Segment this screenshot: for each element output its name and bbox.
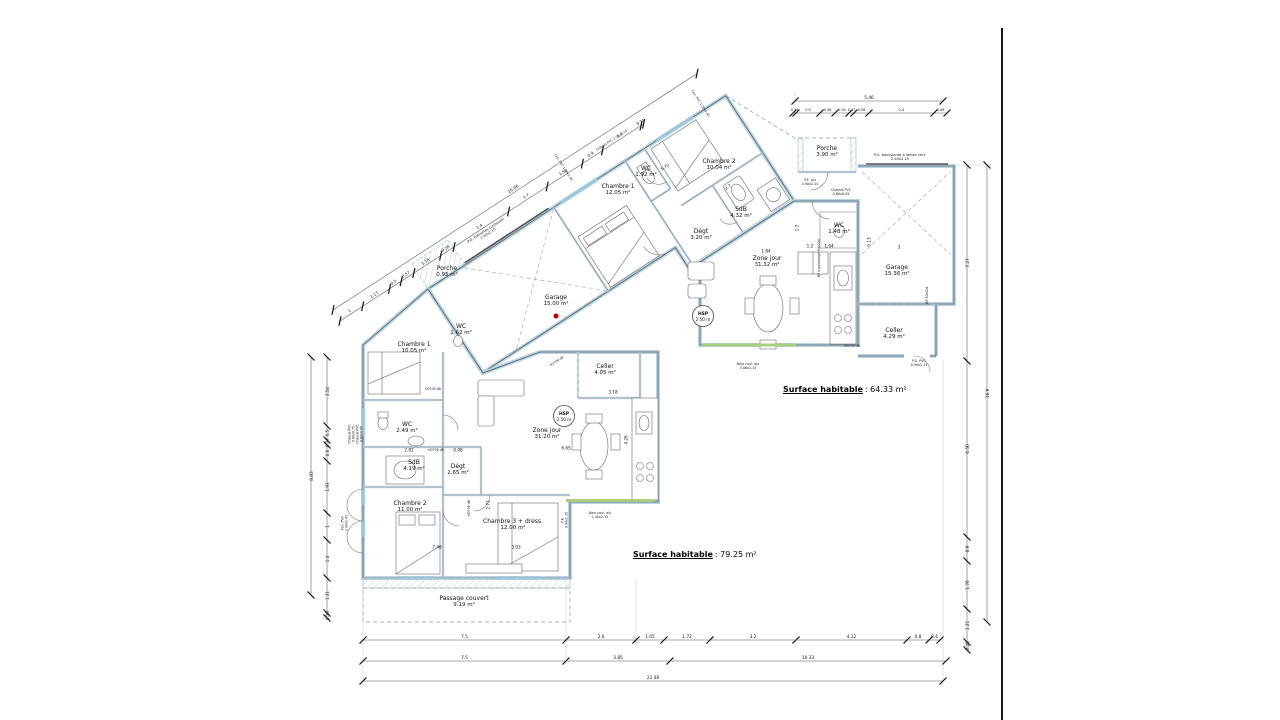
annotation-label: P.E.0.90x2.15	[561, 512, 568, 528]
room-area: 4.32 m²	[730, 213, 752, 220]
annotation-label: P.E. alu0.90x2.15	[802, 179, 819, 187]
surface-label: Surface habitable	[783, 385, 863, 394]
annotation-label: P.G. basculante à lames vert.2.40x2.15	[874, 153, 926, 161]
room-name: Dégt	[690, 228, 712, 235]
annotation-line: 0.90x2.15	[565, 512, 569, 528]
bay-window-lower	[566, 499, 654, 502]
floor-plan-canvas: 7.52.61.051.723.24.120.80.47.53.8510.332…	[0, 0, 1280, 720]
surface-value: : 79.25 m²	[715, 550, 757, 559]
annotation-line: 2.40x2.15	[874, 157, 926, 161]
dim-label: 3.18	[608, 390, 617, 395]
annotation-label: BP à galandage 80x204	[818, 239, 822, 277]
sofa	[478, 380, 524, 396]
svg-text:1.93: 1.93	[325, 482, 330, 491]
room-label-wc: WC1.48 m²	[828, 222, 850, 236]
room-area: 15.36 m²	[884, 271, 909, 278]
lower-wing	[347, 289, 658, 580]
annotation-line: H0709 dB	[428, 449, 444, 453]
annotation-line: BP à galandage 80x204	[818, 239, 822, 277]
annotation-label: Baie coul. alu2.40x2.15	[589, 512, 611, 520]
room-label-chambre-1: Chambre 110.05 m²	[397, 341, 430, 355]
svg-text:0.4: 0.4	[931, 634, 938, 640]
svg-text:1.4: 1.4	[325, 555, 330, 562]
room-label-passage-couvert: Passage couvert9.19 m²	[439, 595, 488, 609]
annotation-line: 0.60x0.95	[831, 193, 851, 197]
room-area: 4.05 m²	[594, 370, 616, 377]
room-name: Dégt	[447, 463, 469, 470]
dim-label: 2.82	[404, 448, 413, 453]
svg-text:0.9: 0.9	[586, 150, 594, 158]
room-label-porche: Porche3.90 m²	[816, 145, 838, 159]
surface-label: Surface habitable	[633, 550, 713, 559]
svg-text:1.05: 1.05	[645, 634, 655, 640]
porche-wall	[798, 138, 803, 172]
dim-label: 3	[898, 245, 901, 250]
dim-label: 6.65	[561, 446, 570, 451]
svg-text:2.54: 2.54	[325, 387, 330, 396]
room-label-d-gt: Dégt2.65 m²	[447, 463, 469, 477]
annotation-line: 2.40x2.15	[589, 516, 611, 520]
surface-habitable-lower: Surface habitable: 79.25 m²	[633, 550, 757, 559]
dim-label: 1.2	[807, 244, 814, 249]
room-name: Celler	[594, 363, 616, 370]
room-name: WC	[396, 421, 418, 428]
svg-text:1.7: 1.7	[522, 192, 530, 200]
bed-chambre2-lower	[396, 512, 440, 574]
room-label-porche: Porche0.95 m²	[436, 265, 458, 279]
room-label-garage: Garage15.36 m²	[884, 264, 909, 278]
dim-label: 1.94	[824, 244, 833, 249]
annotation-label: BP 80x204	[926, 286, 930, 303]
room-name: Zone jour	[753, 255, 782, 262]
svg-text:3.2: 3.2	[750, 634, 757, 640]
svg-text:1.76: 1.76	[965, 580, 971, 590]
sheet-edge-line	[1001, 28, 1003, 720]
room-area: 12.00 m²	[483, 525, 543, 532]
svg-text:0.56: 0.56	[858, 108, 866, 112]
svg-text:0.9: 0.9	[805, 108, 810, 112]
annotation-line: 0.60x0.95	[360, 424, 364, 443]
room-area: 11.00 m²	[393, 507, 426, 514]
room-area: 2.65 m²	[447, 470, 469, 477]
svg-text:0.49: 0.49	[937, 108, 945, 112]
svg-text:16.9: 16.9	[985, 388, 991, 398]
dim-chain-top-right-inner: 0.110.90.560.500.170.562.40.49	[790, 108, 951, 117]
room-area: 31.32 m²	[753, 262, 782, 269]
surface-habitable-upper: Surface habitable: 64.33 m²	[783, 385, 907, 394]
svg-text:1.21: 1.21	[965, 620, 971, 630]
svg-text:10.33: 10.33	[802, 655, 815, 661]
room-area: 12.05 m²	[601, 190, 634, 197]
annotation-line: 3.06x2.15	[737, 367, 759, 371]
dim-chain-right-outer: 16.9	[984, 162, 992, 626]
room-area: 2.49 m²	[396, 428, 418, 435]
surface-value: : 64.33 m²	[865, 385, 907, 394]
svg-text:16.06: 16.06	[507, 183, 521, 195]
room-label-sdb: SdB4.32 m²	[730, 206, 752, 220]
kitchen-upper	[798, 252, 856, 344]
room-area: 4.19 m²	[403, 466, 425, 473]
bed-chambre1-upper	[578, 205, 659, 287]
room-name: Garage	[543, 294, 568, 301]
svg-text:4.12: 4.12	[847, 634, 857, 640]
room-name: Garage	[884, 264, 909, 271]
svg-text:0.17: 0.17	[848, 108, 856, 112]
room-label-garage: Garage15.00 m²	[543, 294, 568, 308]
window	[560, 177, 599, 204]
dim-chain-right-inner: 7.276.500.91.761.210.28	[964, 162, 972, 654]
floor-plan-drawing: 7.52.61.051.723.24.120.80.47.53.8510.332…	[0, 0, 1280, 720]
svg-text:7.5: 7.5	[461, 634, 468, 640]
svg-text:0.5: 0.5	[389, 278, 397, 286]
annotation-label: P.G. PVC0.90x2.15	[911, 360, 928, 368]
room-name: WC	[828, 222, 850, 229]
dim-label: 1.7	[795, 225, 800, 232]
annotation-label: Châssis PVC0.60x0.95	[356, 424, 363, 443]
annotation-label: H0709 dB	[428, 449, 444, 453]
room-label-wc: WC2.49 m²	[396, 421, 418, 435]
room-name: Porche	[816, 145, 838, 152]
svg-text:2.6: 2.6	[598, 634, 605, 640]
room-label-wc: WC1.92 m²	[635, 165, 657, 179]
room-label-celler: Celler4.29 m²	[883, 327, 905, 341]
bed-chambre3	[466, 503, 558, 573]
dim-chain-bottom-row-3: 21.48	[360, 675, 947, 685]
annotation-label: Baie coul. alu3.06x2.15	[737, 363, 759, 371]
armchair	[688, 284, 706, 298]
annotation-label: H0709 dB	[425, 388, 441, 392]
room-label-zone-jour: Zone jour31.20 m²	[533, 427, 562, 441]
svg-text:8.83: 8.83	[309, 471, 315, 481]
room-label-celler: Celler4.05 m²	[594, 363, 616, 377]
svg-text:5.46: 5.46	[864, 95, 874, 101]
room-name: WC	[635, 165, 657, 172]
dim-label: 1.84	[761, 249, 770, 254]
annotation-line: 0.90x2.15	[911, 364, 928, 368]
annotation-line: 0.90x2.15	[802, 183, 819, 187]
hsp-marker: HSP2.50 m	[693, 306, 714, 327]
room-label-d-gt: Dégt3.20 m²	[690, 228, 712, 242]
room-label-chambre-3-dress-: Chambre 3 + dress.12.00 m²	[483, 518, 543, 532]
sofa	[478, 396, 494, 426]
dim-label: 7.48	[432, 545, 441, 550]
room-name: SdB	[730, 206, 752, 213]
room-area: 15.00 m²	[543, 301, 568, 308]
armchair	[688, 262, 714, 280]
room-label-zone-jour: Zone jour31.32 m²	[753, 255, 782, 269]
room-area: 10.04 m²	[702, 165, 735, 172]
room-name: Celler	[883, 327, 905, 334]
svg-text:3.85: 3.85	[613, 655, 623, 661]
room-name: Passage couvert	[439, 595, 488, 602]
annotation-line: BP 80x204	[926, 286, 930, 303]
annotation-label: Fen. PVC1.00x1.45	[341, 515, 348, 531]
dim-chain-left-outer: 8.83	[308, 354, 316, 599]
svg-text:1.31: 1.31	[325, 591, 330, 600]
window	[361, 521, 364, 537]
room-name: WC	[450, 323, 472, 330]
room-area: 4.29 m²	[883, 334, 905, 341]
dim-label: 3.03	[511, 545, 520, 550]
room-label-chambre-2: Chambre 211.00 m²	[393, 500, 426, 514]
dining-table-upper	[745, 276, 799, 349]
annotation-line: H0709 dB	[468, 500, 472, 516]
svg-text:7.5: 7.5	[461, 655, 468, 661]
svg-text:2.50 m: 2.50 m	[557, 417, 572, 422]
room-area: 31.20 m²	[533, 434, 562, 441]
hsp-marker: HSP2.50 m	[554, 406, 575, 427]
room-area: 3.20 m²	[690, 235, 712, 242]
room-name: Chambre 2	[702, 158, 735, 165]
room-name: SdB	[403, 459, 425, 466]
room-label-sdb: SdB4.19 m²	[403, 459, 425, 473]
annotation-line: H0709 dB	[425, 388, 441, 392]
room-label-wc: WC1.62 m²	[450, 323, 472, 337]
dim-chain-top-right-outer: 5.46	[792, 95, 947, 105]
bed-chambre2-upper	[651, 120, 724, 191]
room-name: Chambre 1	[601, 183, 634, 190]
dim-chain-bottom-row-1: 7.52.61.051.723.24.120.80.4	[360, 634, 944, 644]
room-name: Zone jour	[533, 427, 562, 434]
bed-chambre1-lower	[368, 352, 420, 394]
svg-text:2.50 m: 2.50 m	[696, 317, 711, 322]
svg-text:0.8: 0.8	[915, 634, 922, 640]
svg-text:1: 1	[347, 308, 352, 314]
dining-table-lower	[572, 414, 620, 479]
room-area: 3.90 m²	[816, 152, 838, 159]
dim-chain-bottom-row-2: 7.53.8510.33	[360, 655, 950, 665]
svg-text:1: 1	[325, 525, 330, 528]
svg-text:0.5: 0.5	[325, 429, 330, 436]
svg-text:7.27: 7.27	[965, 258, 971, 268]
room-name: Porche	[436, 265, 458, 272]
dim-chain-left-inner: 2.540.50.170.61.9311.41.310.18	[324, 354, 331, 622]
room-name: Chambre 2	[393, 500, 426, 507]
annotation-label: H0709 dB	[844, 345, 860, 349]
room-label-chambre-2: Chambre 210.04 m²	[702, 158, 735, 172]
room-area: 1.62 m²	[450, 330, 472, 337]
svg-text:2.4: 2.4	[899, 108, 904, 112]
garage-cross	[862, 172, 950, 254]
svg-text:21.48: 21.48	[647, 675, 660, 681]
room-area: 10.05 m²	[397, 348, 430, 355]
right-block	[688, 96, 954, 372]
svg-text:0.56: 0.56	[824, 108, 832, 112]
room-label-chambre-1: Chambre 112.05 m²	[601, 183, 634, 197]
room-area: 1.48 m²	[828, 229, 850, 236]
dim-label: 5.13	[867, 237, 872, 246]
svg-text:0.9: 0.9	[965, 545, 971, 552]
svg-text:0.6: 0.6	[325, 449, 330, 456]
red-dot-marker	[554, 314, 559, 319]
room-name: Chambre 1	[397, 341, 430, 348]
svg-text:6.50: 6.50	[965, 444, 971, 454]
room-area: 9.19 m²	[439, 602, 488, 609]
room-area: 0.95 m²	[436, 272, 458, 279]
window	[361, 489, 364, 505]
dim-label: 4.26	[624, 435, 629, 444]
room-area: 1.92 m²	[635, 172, 657, 179]
bay-window-upper	[702, 344, 796, 347]
porche-wall	[851, 138, 856, 172]
annotation-line: 1.00x1.45	[345, 515, 349, 531]
svg-text:0.57: 0.57	[401, 269, 412, 278]
annotation-line: H0709 dB	[844, 345, 860, 349]
annotation-label: Châssis PVC0.60x0.95	[831, 189, 851, 197]
svg-text:1.72: 1.72	[682, 634, 692, 640]
room-name: Chambre 3 + dress.	[483, 518, 543, 525]
svg-text:0.50: 0.50	[838, 108, 846, 112]
kitchen-lower	[632, 398, 658, 500]
dim-label: 2.71	[486, 500, 491, 509]
svg-text:1.17: 1.17	[369, 290, 380, 299]
annotation-label: H0709 dB	[468, 500, 472, 516]
dim-label: 0.98	[453, 448, 462, 453]
